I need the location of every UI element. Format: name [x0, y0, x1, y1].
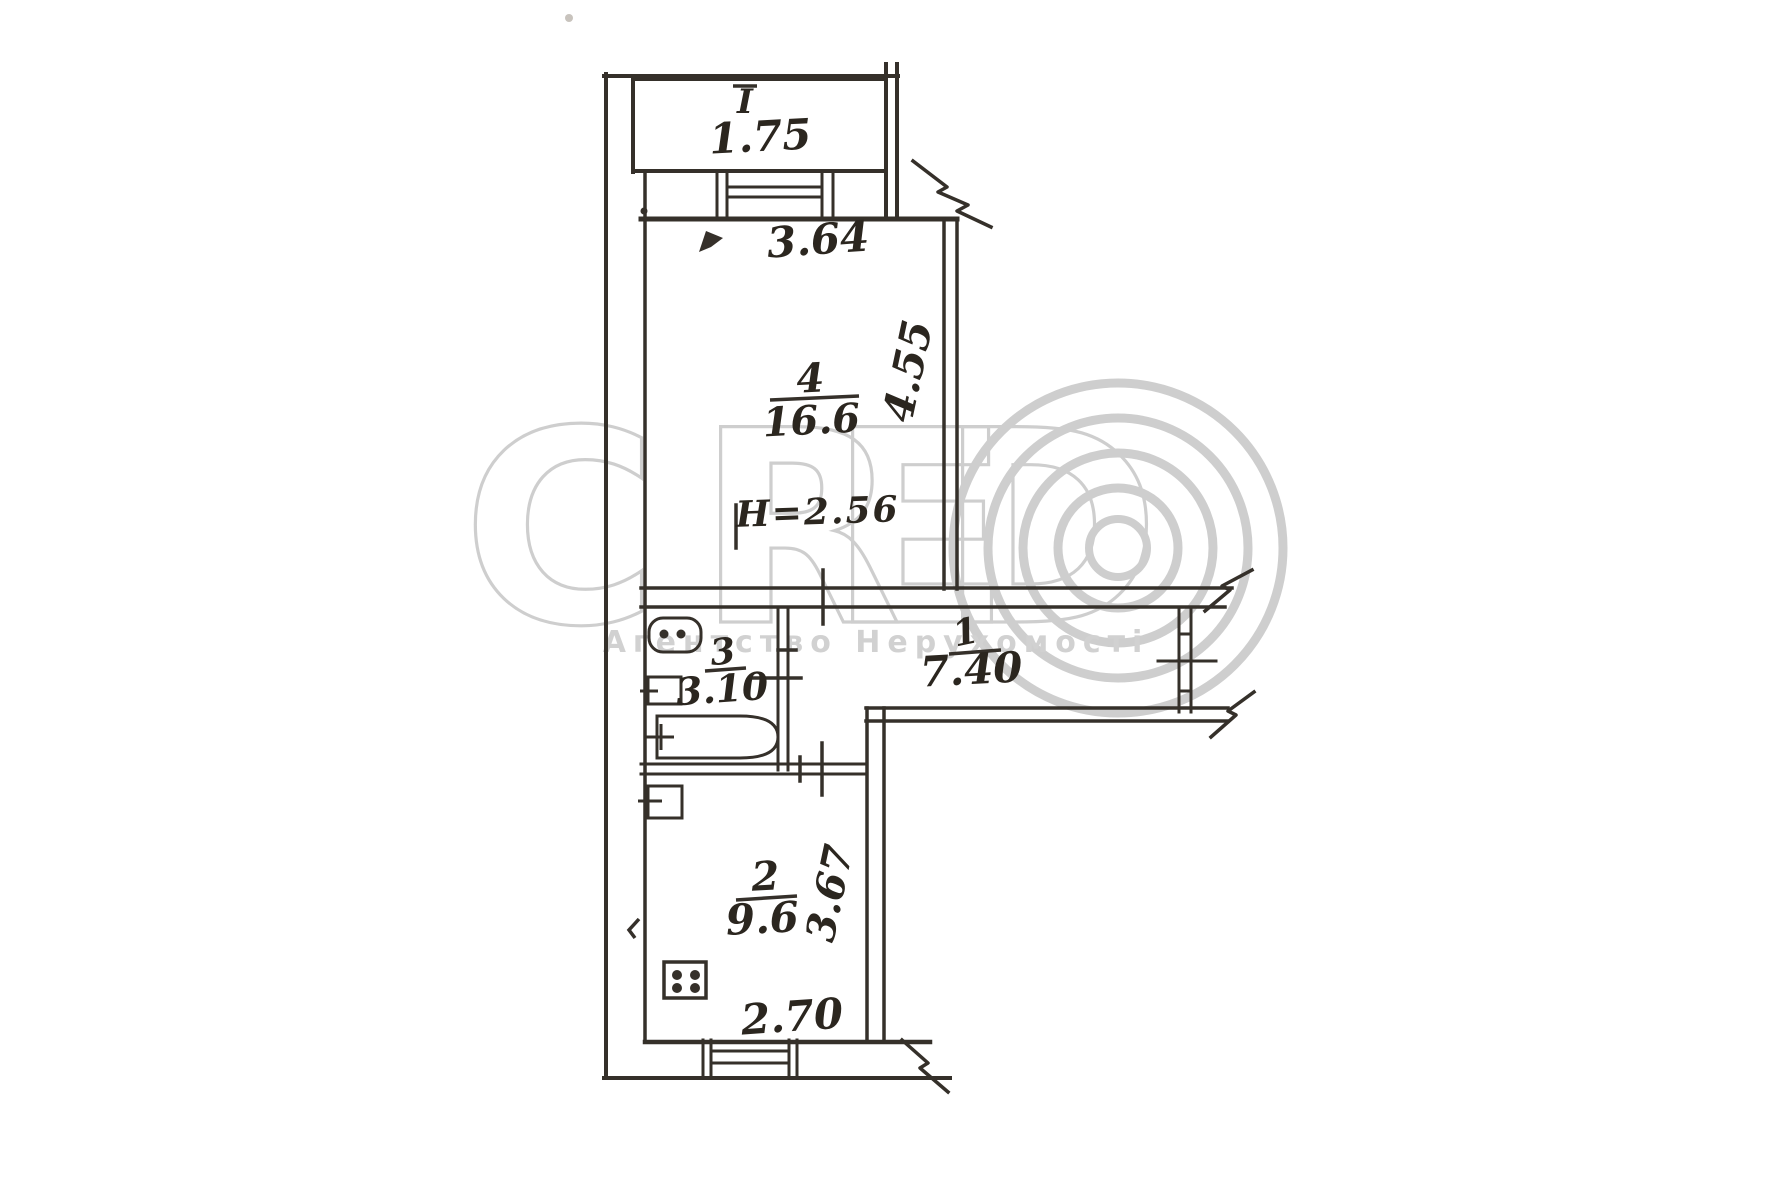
stove-icon — [664, 962, 706, 998]
scan-speck — [565, 14, 573, 22]
room-bath-area: 3.10 — [674, 663, 770, 714]
room-kitchen-area: 9.6 — [724, 892, 800, 945]
room-living-area: 16.6 — [761, 395, 861, 447]
break-mark-bottom-right — [902, 1040, 948, 1092]
floor-plan-scan: C R E D Агентство Нерухомості — [0, 0, 1772, 1181]
room-hall-area: 7.40 — [919, 642, 1024, 696]
stove-burner-dot — [672, 970, 682, 980]
bathtub-icon — [657, 716, 778, 758]
stove-burner-dot — [690, 970, 700, 980]
dim-kitchen-width: 2.70 — [738, 989, 844, 1045]
kitchen-window — [703, 1040, 797, 1078]
break-mark-hall-right-bottom — [1211, 692, 1254, 737]
ceiling-height-note: H=2.56 — [734, 488, 900, 536]
floor-plan-drawing: C R E D Агентство Нерухомості — [0, 0, 1772, 1181]
wall-kitchen-right — [867, 708, 884, 1042]
dim-kitchen-depth: 3.67 — [797, 840, 863, 945]
wall-hall-bottom — [866, 708, 1228, 721]
stove-burner-dot — [672, 983, 682, 993]
bathtub-faucet-cross — [645, 724, 674, 750]
dim-living-width: 3.64 — [765, 212, 870, 268]
watermark-subtitle: Агентство Нерухомості — [603, 625, 1150, 660]
wall-kitchen-top — [641, 764, 866, 774]
washbasin-tap-dot — [677, 630, 686, 639]
stove-burner-dot — [690, 983, 700, 993]
balcony-area: 1.75 — [708, 109, 813, 163]
washbasin-tap-dot — [660, 630, 669, 639]
vent-flag-mark — [699, 231, 723, 252]
room-living-number: 4 — [795, 354, 825, 402]
ink-blot — [641, 208, 648, 215]
wall-tick-mark — [629, 919, 639, 938]
balcony-window — [717, 172, 833, 220]
